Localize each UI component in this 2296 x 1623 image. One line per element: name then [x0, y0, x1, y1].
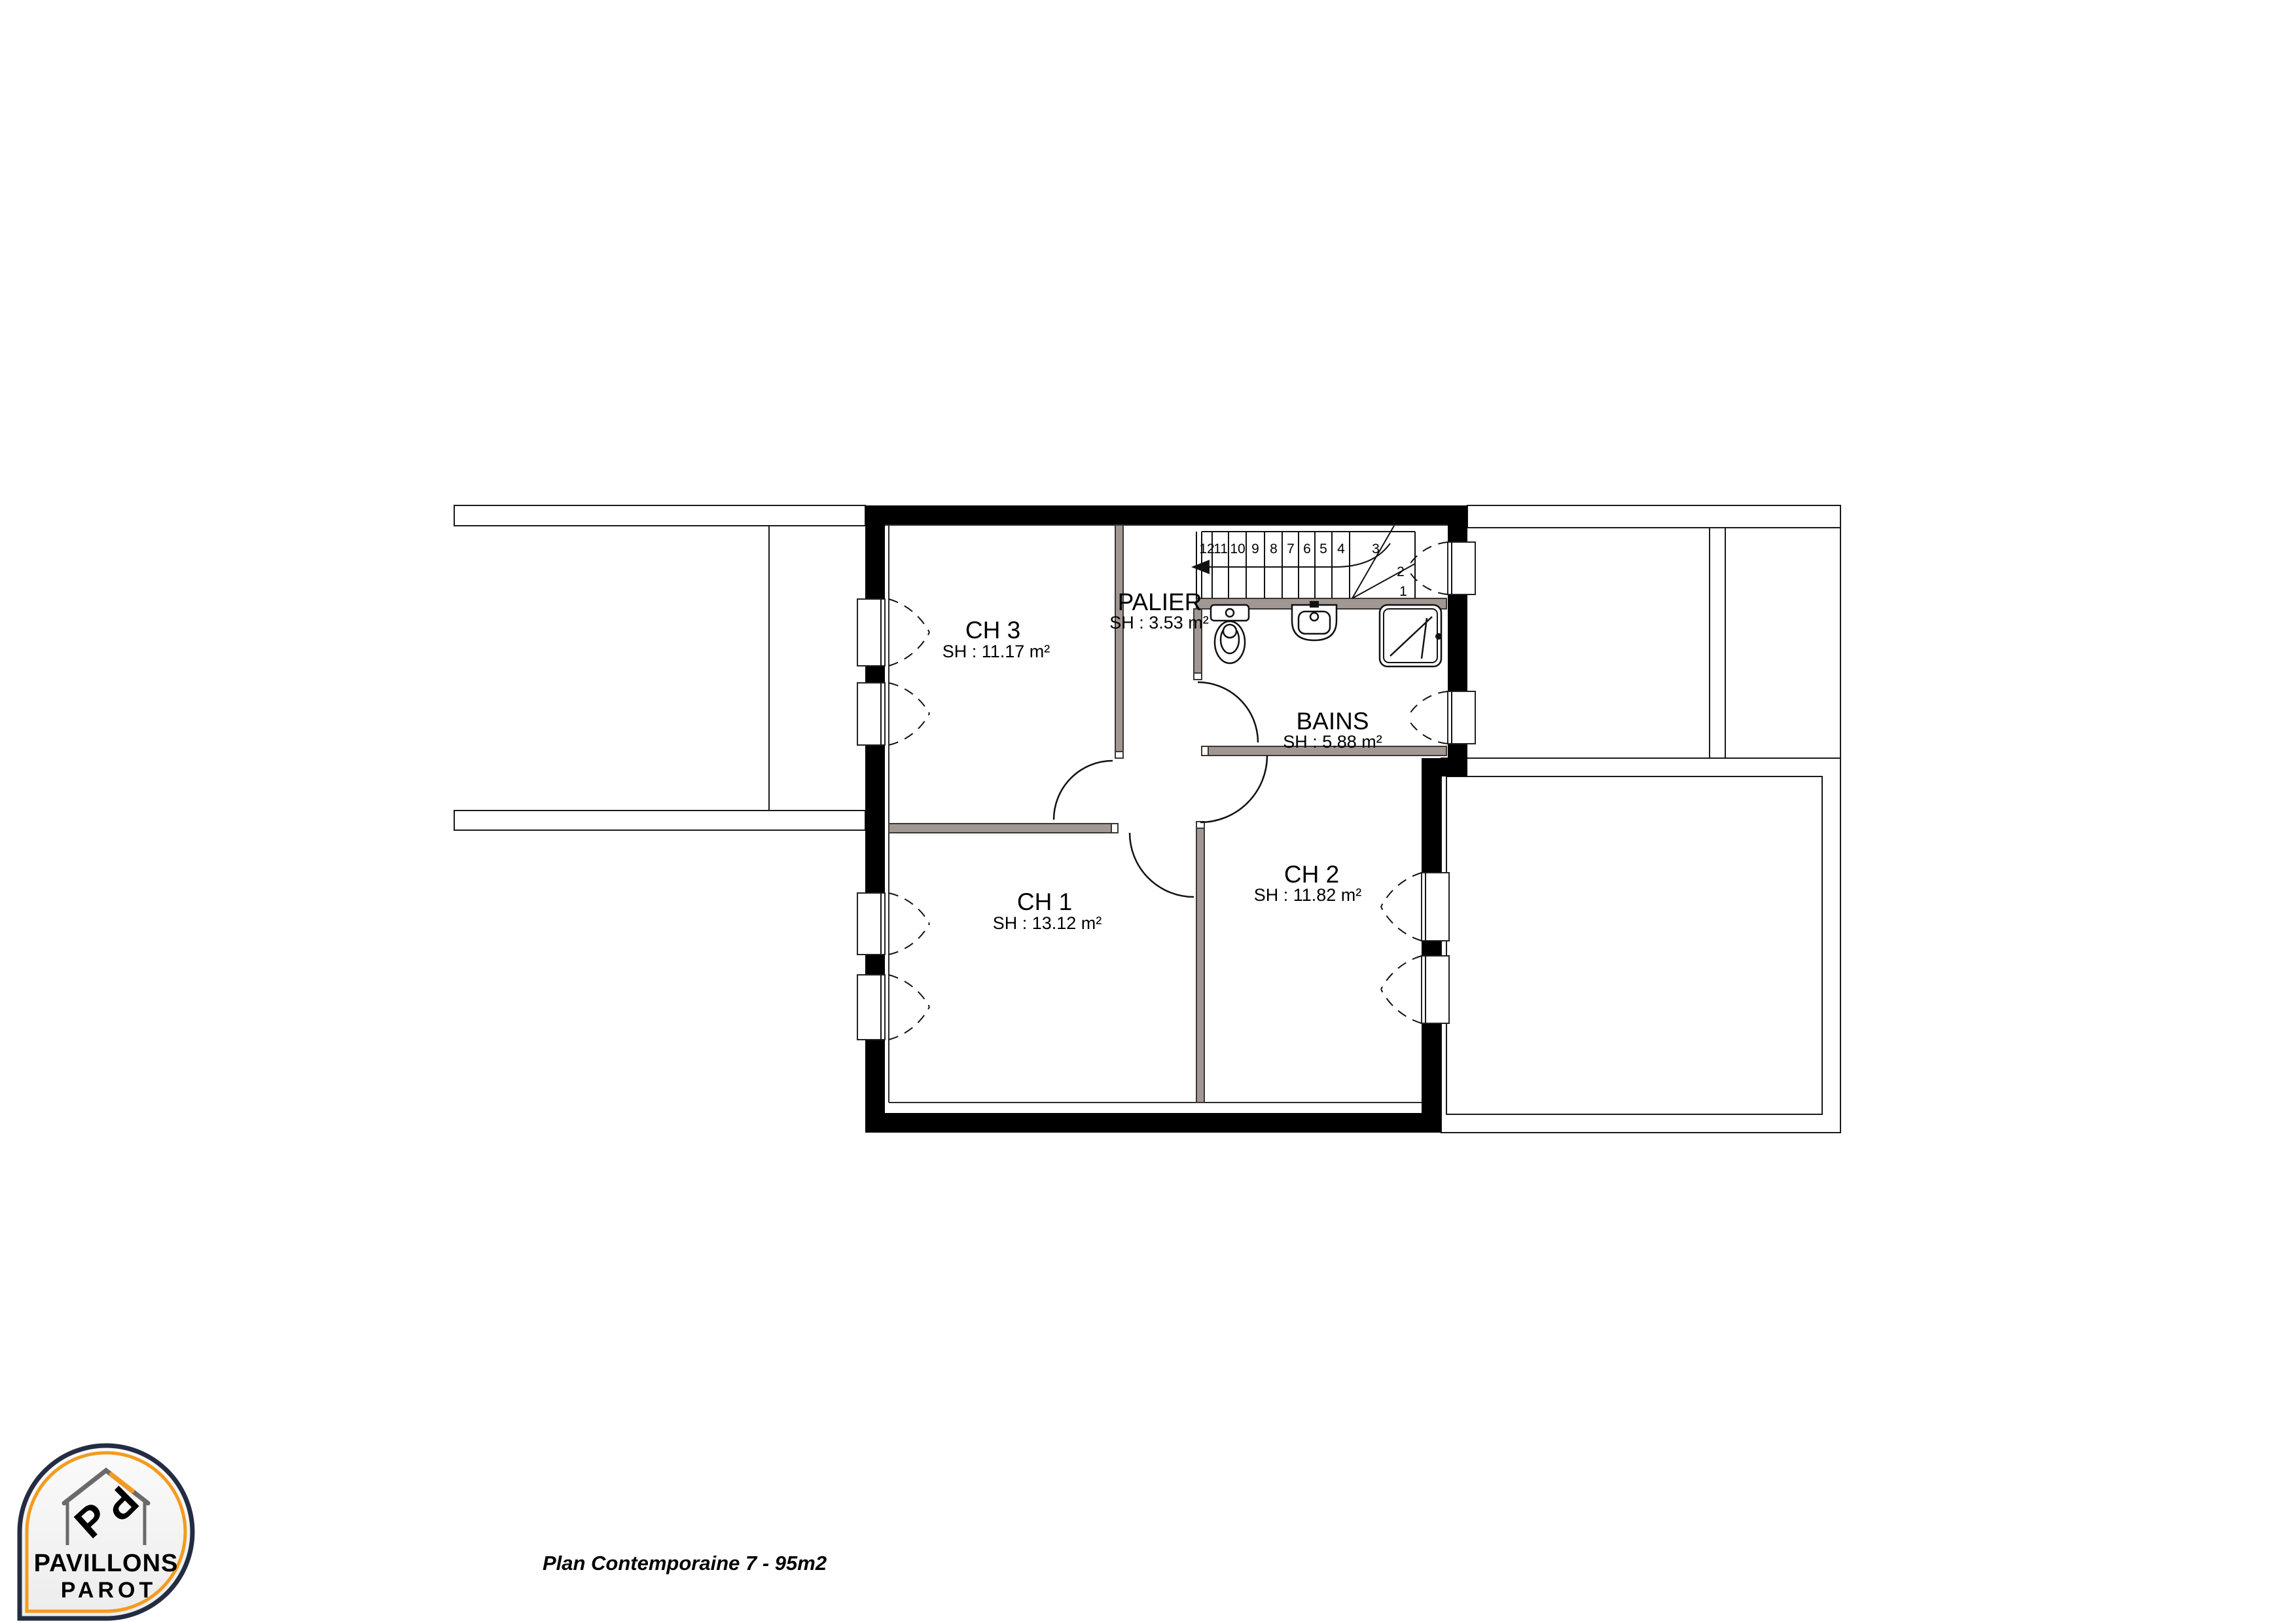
room-name: CH 3 [965, 617, 1020, 644]
wall-left-segment [865, 666, 885, 683]
room-name: CH 1 [1017, 888, 1072, 915]
window-ch3-1 [857, 599, 929, 666]
partition-ch3-ch1 [889, 824, 1118, 833]
door-arcs [1054, 682, 1267, 897]
room-ch1-label: CH 1 SH : 13.12 m² [993, 888, 1102, 933]
wall-right-segment [1448, 594, 1467, 691]
sink-faucet [1310, 601, 1319, 608]
partition-end-cap [1111, 824, 1118, 833]
right-wing-top-strip [1467, 505, 1840, 528]
plan-caption: Plan Contemporaine 7 - 95m2 [543, 1552, 827, 1575]
partition-palier-ch3 [1115, 525, 1123, 752]
left-wing-outline [454, 505, 865, 830]
wall-top [865, 505, 1467, 525]
stair-step-number: 5 [1319, 541, 1327, 556]
room-area-label: SH : 5.88 m² [1283, 732, 1382, 752]
window-bains [1407, 691, 1475, 744]
room-area-label: SH : 3.53 m² [1109, 613, 1209, 632]
brand-name-pavillons: PAVILLONS [34, 1550, 179, 1577]
wall-left-segment [865, 955, 885, 975]
wall-right-segment [1448, 505, 1467, 542]
stairs-arrow-icon [1191, 560, 1210, 574]
left-wing-top-strip [454, 505, 865, 526]
wall-left-segment [865, 1040, 885, 1133]
wall-right-segment [1448, 744, 1467, 758]
stair-step-number: 2 [1397, 564, 1405, 579]
stairs: 12 11 10 9 8 7 6 5 4 3 2 1 [1191, 526, 1415, 599]
room-ch2-label: CH 2 SH : 11.82 m² [1254, 861, 1362, 905]
stair-step-number: 11 [1213, 541, 1228, 556]
stair-step-number: 8 [1270, 541, 1278, 556]
partition-end-cap [1194, 673, 1202, 680]
floor-plan-page: 12 11 10 9 8 7 6 5 4 3 2 1 [0, 0, 2296, 1623]
wall-right-segment [1422, 776, 1441, 873]
window-ch3-2 [857, 683, 929, 745]
partition-end-cap [1115, 752, 1123, 758]
wall-left-segment [865, 745, 885, 893]
room-palier-label: PALIER SH : 3.53 m² [1109, 589, 1209, 632]
stair-step-number: 12 [1199, 541, 1214, 556]
room-area-label: SH : 11.82 m² [1254, 885, 1362, 905]
right-wing-outline [1441, 505, 1840, 1133]
stair-step-numbers: 12 11 10 9 8 7 6 5 4 3 2 1 [1199, 541, 1407, 599]
room-name: CH 2 [1284, 861, 1339, 888]
wall-right-segment [1422, 941, 1441, 956]
room-ch3-label: CH 3 SH : 11.17 m² [942, 617, 1050, 661]
sink-icon [1292, 601, 1336, 640]
window-ch2-1 [1381, 873, 1449, 941]
stair-step-number: 10 [1230, 541, 1245, 556]
stair-step-number: 1 [1399, 584, 1407, 599]
floor-plan-drawing: 12 11 10 9 8 7 6 5 4 3 2 1 [0, 0, 2296, 1623]
door-arc-ch1 [1130, 833, 1194, 897]
right-wing-terrace-outer [1441, 758, 1840, 1133]
room-name: BAINS [1296, 708, 1369, 735]
partition-end-cap [1202, 746, 1208, 756]
wall-left-segment [865, 505, 885, 599]
wall-right-jog [1422, 758, 1467, 776]
window-ch1-2 [857, 975, 929, 1040]
toilet-icon [1211, 605, 1249, 663]
stair-step-number: 7 [1287, 541, 1295, 556]
room-area-label: SH : 11.17 m² [942, 642, 1050, 661]
window-ch2-2 [1381, 956, 1449, 1023]
partition-ch1-ch2 [1196, 822, 1204, 1103]
right-wing-tall-rect [1725, 528, 1840, 758]
shower-handle [1435, 633, 1442, 640]
room-name: PALIER [1118, 589, 1202, 615]
window-stairwell [1407, 542, 1475, 594]
stair-treads [1212, 526, 1415, 598]
shower-icon [1380, 605, 1442, 666]
bathroom-fixtures [1211, 601, 1442, 666]
brand-name-parot: PAROT [61, 1578, 156, 1603]
door-arc-ch2 [1200, 756, 1267, 822]
stair-step-number: 4 [1337, 541, 1345, 556]
stair-step-number: 9 [1251, 541, 1259, 556]
window-ch1-1 [857, 893, 929, 955]
right-wing-terrace-inner [1446, 776, 1822, 1114]
room-area-label: SH : 13.12 m² [993, 913, 1102, 933]
wall-bottom [865, 1113, 1441, 1133]
door-arc-bains [1198, 682, 1258, 742]
logo: P P PAVILLONS PAROT [20, 1446, 192, 1618]
door-arc-ch3 [1054, 761, 1113, 820]
room-bains-label: BAINS SH : 5.88 m² [1283, 708, 1382, 752]
left-wing-bottom-strip [454, 811, 865, 830]
wall-right-segment [1422, 1023, 1441, 1113]
stair-step-number: 6 [1303, 541, 1311, 556]
stair-step-number: 3 [1372, 541, 1380, 556]
